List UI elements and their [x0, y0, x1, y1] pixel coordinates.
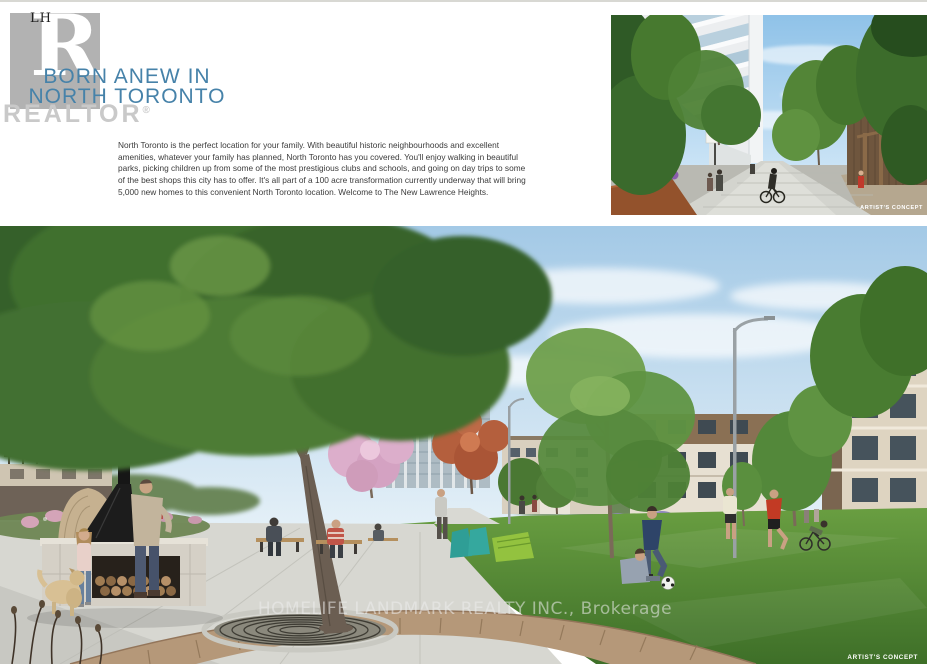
intro-paragraph: North Toronto is the perfect location fo…	[118, 140, 530, 199]
artists-concept-label: ARTIST'S CONCEPT	[860, 205, 923, 211]
page-title: BORN ANEW IN NORTH TORONTO	[14, 67, 240, 107]
top-rule	[0, 0, 927, 2]
brokerage-watermark: HOMELIFE LANDMARK REALTY INC., Brokerage	[258, 599, 672, 619]
walkway-render-image: ARTIST'S CONCEPT	[611, 15, 927, 215]
park-render-image: HOMELIFE LANDMARK REALTY INC., Brokerage…	[0, 226, 927, 664]
child-figure	[859, 171, 864, 176]
lh-monogram: LH	[30, 11, 52, 26]
artists-concept-label: ARTIST'S CONCEPT	[847, 654, 918, 661]
page-title-line2: NORTH TORONTO	[14, 87, 240, 107]
soccer-ball	[662, 577, 675, 590]
brochure-page: R LH REALTOR® BORN ANEW IN NORTH TORONTO…	[0, 0, 927, 664]
page-title-line1: BORN ANEW IN	[14, 67, 240, 87]
